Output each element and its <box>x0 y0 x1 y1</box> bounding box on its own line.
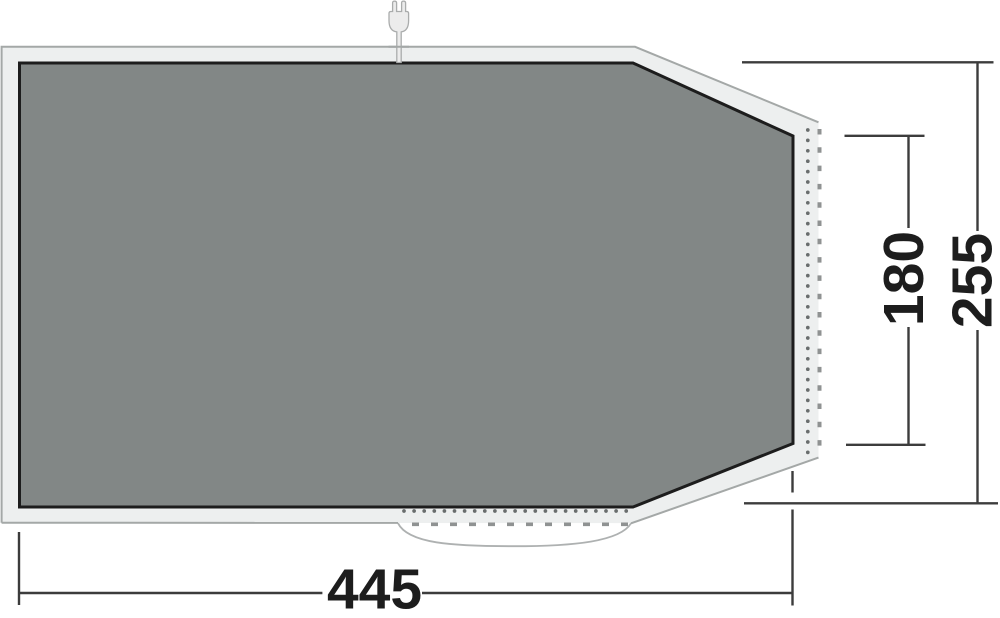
svg-text:255: 255 <box>941 233 1000 328</box>
svg-text:180: 180 <box>872 231 936 326</box>
svg-text:445: 445 <box>327 558 422 618</box>
